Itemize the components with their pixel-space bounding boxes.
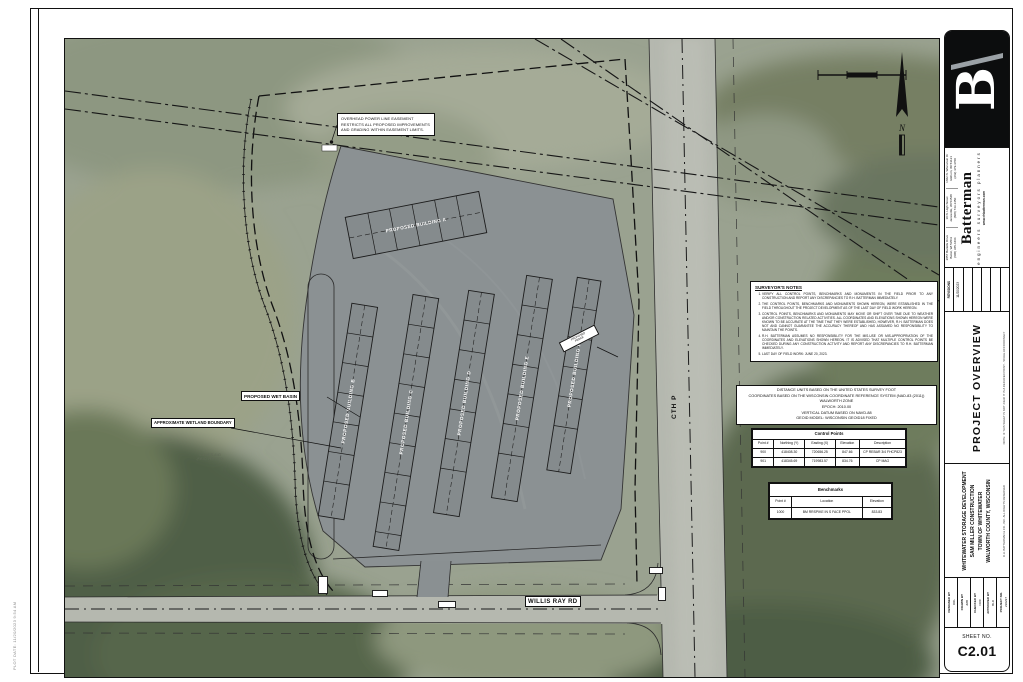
cp-title: Control Points — [753, 430, 906, 440]
table-row: 1000 BM RRSPIKE IN S FACE PPOL 833.83 — [770, 507, 892, 518]
note-item: VERIFY ALL CONTROL POINTS, BENCHMARKS AN… — [762, 292, 933, 300]
easement-callout: OVERHEAD POWER LINE EASEMENT RESTRICTS A… — [337, 113, 435, 136]
cp-header: Northing (Y) — [774, 440, 805, 449]
scale-note: NOTE: IF THIS SHEET IS NOT 24x36 IT IS A… — [1002, 314, 1006, 462]
cp-cell: 900 — [753, 449, 774, 458]
wet-basin-label: PROPOSED WET BASIN — [241, 391, 300, 401]
cp-header: Elevation — [835, 440, 859, 449]
bm-header: Elevation — [862, 496, 891, 507]
cp-cell: 720656.25 — [805, 449, 836, 458]
station-label — [438, 601, 456, 608]
cp-cell: 901 — [753, 458, 774, 467]
table-row: 901 418345.69 719983.57 834.76 CP MAG — [753, 458, 906, 467]
cp-cell: 834.76 — [835, 458, 859, 467]
fields-panel: DESIGNED BY DRL DRAWN BY JMB CHECKED BY … — [945, 577, 1009, 627]
note-item: R.H. BATTERMAN ASSUMES NO RESPONSIBILITY… — [762, 334, 933, 351]
logo-swoosh-icon — [945, 31, 1009, 147]
cp-cell: 719983.57 — [805, 458, 836, 467]
surveyors-notes: SURVEYOR'S NOTES VERIFY ALL CONTROL POIN… — [750, 281, 938, 362]
project-panel: WHITEWATER STORAGE DEVELOPMENT SAM MILLE… — [945, 463, 1009, 577]
revision-row — [964, 268, 973, 311]
revision-row — [982, 268, 991, 311]
title-block: B 2857 Bartells Drive Beloit, WI 53511 (… — [944, 30, 1010, 672]
cp-cell: 418345.69 — [774, 458, 805, 467]
bm-cell: 1000 — [770, 507, 792, 518]
brand-name: Batterman — [960, 149, 975, 267]
field-checked-by: CHECKED BY DRC — [971, 578, 984, 627]
cp-header: Easting (X) — [805, 440, 836, 449]
note-item: LAST DAY OF FIELD WORK: JUNE 20, 2023. — [762, 352, 933, 356]
driveway — [417, 561, 451, 597]
copyright-note: R.H. BATTERMAN & CO., INC. ALL RIGHTS RE… — [1002, 466, 1006, 576]
sheet-number-panel: SHEET NO. C2.01 — [945, 627, 1009, 671]
willis-ray-rd-label: WILLIS RAY RD — [525, 596, 581, 607]
station-label — [372, 590, 388, 597]
brand-panel: 2857 Bartells Drive Beloit, WI 53511 (60… — [945, 147, 1009, 267]
bm-title: Benchmarks — [770, 484, 892, 497]
cp-cell: CP REBAR 3/4 FHCP823 — [860, 449, 906, 458]
sheet-no: C2.01 — [945, 643, 1009, 659]
project-line: SAM MILLER CONSTRUCTION — [970, 484, 976, 557]
plan-sheet: PLOT DATE: 11/20/2023 9:54 AM — [0, 0, 1023, 682]
binding-margin-line — [38, 8, 39, 672]
benchmarks-table: Benchmarks Point # Location Elevation 10… — [768, 482, 893, 520]
project-line: WHITEWATER STORAGE DEVELOPMENT — [962, 471, 968, 570]
revision-entry: 11/20/2023 — [956, 282, 960, 298]
cp-cell: 418408.30 — [774, 449, 805, 458]
cth-p-label: CTH P — [671, 385, 678, 419]
logo-panel: B — [945, 31, 1009, 147]
project-line: WALWORTH COUNTY, WISCONSIN — [986, 479, 992, 562]
bm-cell: 833.83 — [862, 507, 891, 518]
plan-viewport[interactable]: PROPOSED BUILDING A PROPOSED BUILDING B — [64, 38, 940, 678]
control-points-table: Control Points Point # Northing (Y) East… — [751, 428, 907, 468]
field-designed-by: DESIGNED BY DRL — [945, 578, 958, 627]
revisions-panel: REVISIONS 11/20/2023 — [945, 267, 1009, 311]
field-project-no: PROJECT NO. 230297 — [997, 578, 1009, 627]
field-approved-by: APPROVED BY BLD — [984, 578, 997, 627]
wetland-boundary-label: APPROXIMATE WETLAND BOUNDARY — [151, 418, 235, 428]
station-label — [658, 587, 666, 601]
note-item: THE CONTROL POINTS, BENCHMARKS AND MONUM… — [762, 302, 933, 310]
note-item: CONTROL POINTS, BENCHMARKS AND MONUMENTS… — [762, 312, 933, 333]
north-letter: N — [898, 123, 906, 133]
table-row: 900 418408.30 720656.25 847.66 CP REBAR … — [753, 449, 906, 458]
cp-cell: CP MAG — [860, 458, 906, 467]
revision-row — [1001, 268, 1009, 311]
sheet-no-label: SHEET NO. — [945, 634, 1009, 640]
revisions-title: REVISIONS — [947, 281, 951, 298]
field-drawn-by: DRAWN BY JMB — [958, 578, 971, 627]
plot-stamp: PLOT DATE: 11/20/2023 9:54 AM — [12, 470, 17, 670]
brand-website[interactable]: www.rhbatterman.com — [982, 149, 986, 267]
project-line: TOWN OF WHITEWATER — [978, 491, 984, 550]
sheet-title-panel: PROJECT OVERVIEW NOTE: IF THIS SHEET IS … — [945, 311, 1009, 463]
revision-row — [991, 268, 1000, 311]
bm-header: Location — [791, 496, 862, 507]
cp-cell: 847.66 — [835, 449, 859, 458]
cp-header: Description — [860, 440, 906, 449]
office-addresses: 2857 Bartells Drive Beloit, WI 53511 (60… — [946, 149, 958, 267]
datum-note: DISTANCE UNITS BASED ON THE UNITED STATE… — [736, 385, 937, 425]
easement-line: AND GRADING WITHIN EASEMENT LIMITS. — [341, 127, 431, 133]
revision-row — [973, 268, 982, 311]
sheet-title: PROJECT OVERVIEW — [971, 323, 983, 451]
wetland-area-tag: C-4 WETLAND (FIELD VERIFIED) — [185, 453, 235, 461]
station-label — [649, 567, 663, 574]
surveyors-notes-title: SURVEYOR'S NOTES — [755, 285, 933, 290]
bm-cell: BM RRSPIKE IN S FACE PPOL — [791, 507, 862, 518]
bm-header: Point # — [770, 496, 792, 507]
station-label — [318, 576, 328, 594]
cp-header: Point # — [753, 440, 774, 449]
brand-tagline: engineers surveyors planners — [976, 149, 981, 267]
datum-line: GEOID MODEL: WISCONSIN GEOID18 FIXED — [739, 416, 934, 422]
